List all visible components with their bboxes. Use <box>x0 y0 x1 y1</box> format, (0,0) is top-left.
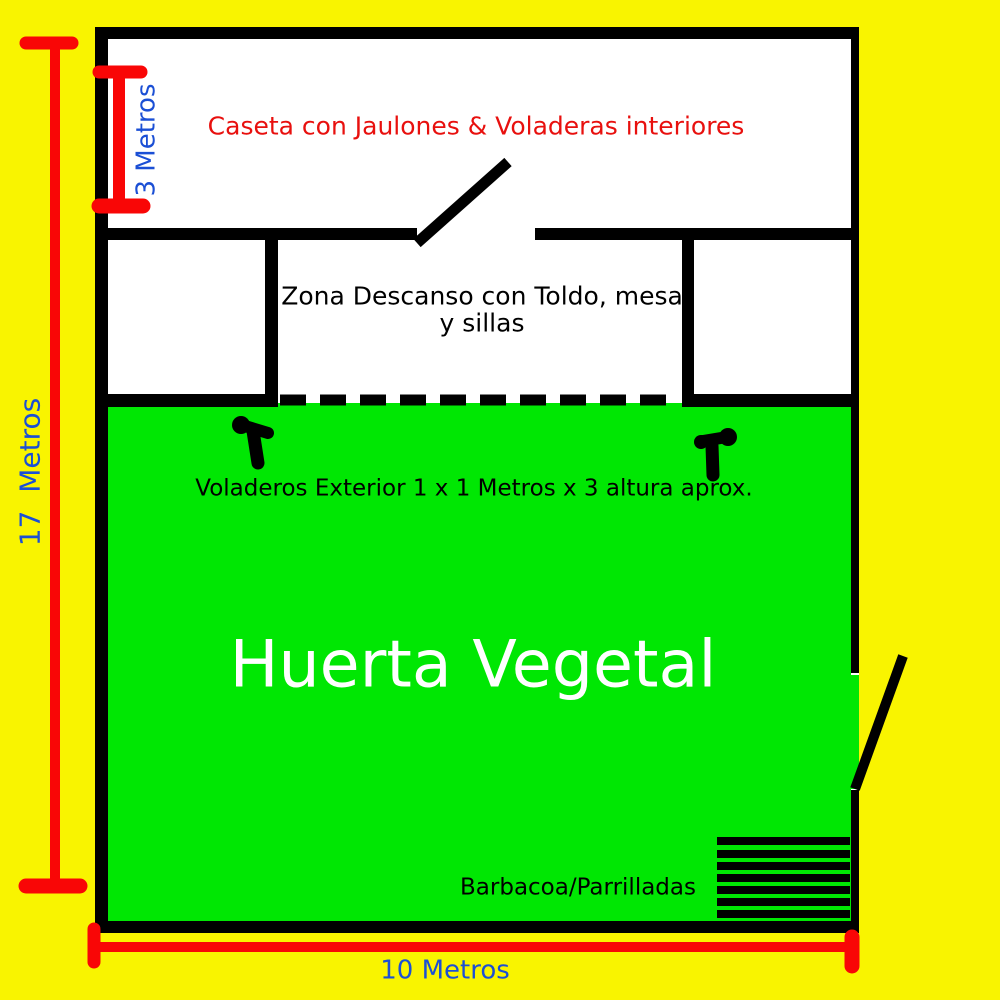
arrow-head-blob <box>694 435 708 449</box>
caseta-label: Caseta con Jaulones & Voladeras interior… <box>208 112 745 140</box>
barbacoa-stripe <box>717 898 850 906</box>
left-room-wall-bottom <box>95 394 278 407</box>
floor-plan: Caseta con Jaulones & Voladeras interior… <box>0 0 1000 1000</box>
voladeros-label: Voladeros Exterior 1 x 1 Metros x 3 altu… <box>195 476 752 501</box>
barbacoa-stripe <box>717 886 850 894</box>
barbacoa-stripe <box>717 862 850 870</box>
outer-wall-bottom <box>95 921 859 933</box>
arrow-head-blob <box>232 416 250 434</box>
left-room-wall-right <box>265 228 278 407</box>
outer-wall-right-upper <box>851 27 859 673</box>
zona-descanso-label-line1: Zona Descanso con Toldo, mesa <box>281 282 683 310</box>
huerta-vegetal-label: Huerta Vegetal <box>230 629 717 701</box>
barbacoa-stripe <box>717 850 850 858</box>
outer-wall-top <box>95 27 859 39</box>
total-width-dimension-label: 10 Metros <box>380 957 510 986</box>
total-height-dimension-label: 17 Metros <box>16 398 47 546</box>
caseta-wall-left-segment <box>95 228 417 240</box>
right-room-wall-left <box>682 228 694 407</box>
arrow-shaft <box>712 446 713 475</box>
barbacoa-stripe <box>717 874 850 882</box>
barbacoa-label: Barbacoa/Parrilladas <box>460 875 696 900</box>
zona-descanso-label-line2: y sillas <box>440 309 525 337</box>
arrow-head-blob <box>719 428 737 446</box>
garden-gate-swing <box>855 656 903 789</box>
barbacoa-stripe <box>717 837 850 845</box>
caseta-height-dimension-label: 3 Metros <box>133 83 162 196</box>
right-room-wall-bottom <box>682 394 852 407</box>
barbacoa-stripe <box>717 910 850 918</box>
outer-wall-right-lower <box>851 790 859 933</box>
outer-wall-left <box>95 27 108 933</box>
